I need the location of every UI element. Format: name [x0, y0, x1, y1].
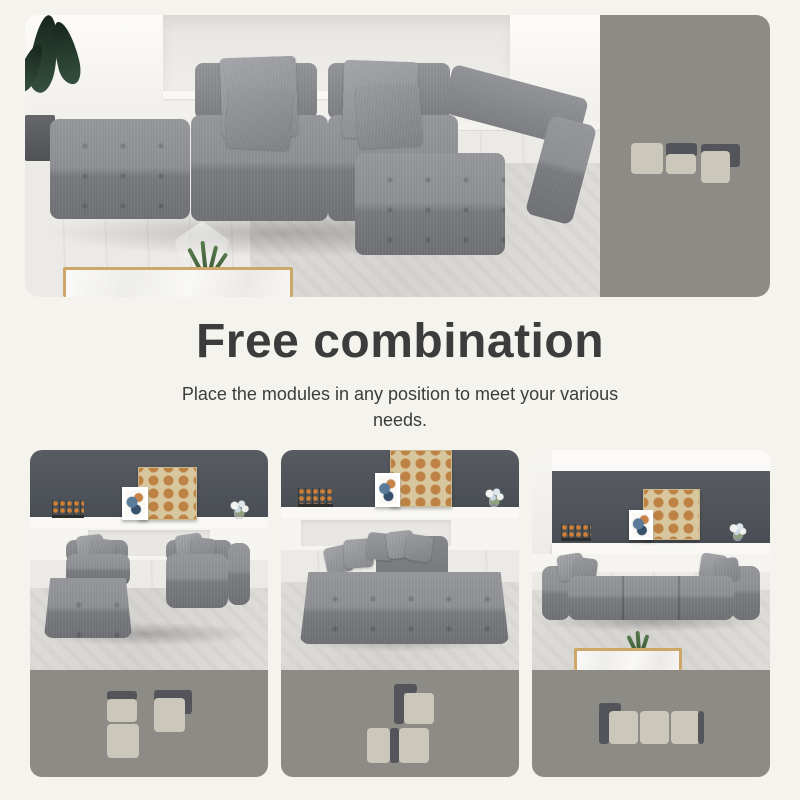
module-backrest-block — [390, 728, 399, 763]
framed-art — [122, 487, 148, 520]
pillow — [404, 533, 434, 563]
module-backrest-block — [698, 711, 704, 744]
coffee-table — [63, 267, 293, 297]
chaise-module — [355, 153, 505, 255]
ottoman-module — [44, 578, 132, 638]
module-backrest-block — [394, 684, 404, 724]
variant-photo-chaise-and-corner — [30, 450, 268, 670]
variant-card-1 — [30, 450, 268, 777]
flower-bouquet — [228, 500, 250, 516]
module-seat-block — [631, 143, 663, 174]
module-seat-block — [367, 728, 390, 763]
headline-section: Free combination Place the modules in an… — [0, 297, 800, 450]
page-subtitle: Place the modules in any position to mee… — [160, 382, 640, 433]
module-seat-block — [640, 711, 669, 744]
variant-panel-2 — [281, 670, 519, 777]
pillow — [355, 83, 422, 148]
variant-panel-3 — [532, 670, 770, 777]
framed-art — [629, 510, 653, 540]
page-title: Free combination — [196, 314, 604, 369]
product-infographic: Free combination Place the modules in an… — [0, 0, 800, 800]
module-backrest-block — [599, 703, 609, 744]
wall-ledge — [552, 543, 770, 554]
flower-bouquet — [483, 488, 505, 504]
module-seat-block — [399, 728, 429, 763]
module-seat-block — [154, 698, 185, 732]
corner-plant — [25, 15, 95, 109]
candelabra — [561, 524, 591, 541]
ottoman-module — [50, 119, 190, 219]
seat-row-modules — [568, 576, 734, 620]
module-diagram-chaise-sectional — [631, 143, 740, 183]
hero-config-panel — [600, 15, 770, 297]
module-seat-block — [701, 151, 730, 183]
module-seat-block — [666, 154, 696, 174]
corner-seat-module — [166, 554, 228, 608]
variant-card-2 — [281, 450, 519, 777]
side-wall — [532, 450, 552, 570]
wall-ledge — [281, 507, 519, 518]
module-seat-block — [609, 711, 638, 744]
variant-card-3 — [532, 450, 770, 777]
module-seat-block — [107, 699, 137, 722]
hero-card — [25, 15, 770, 297]
variant-photo-daybed — [281, 450, 519, 670]
variant-photo-three-seater — [532, 450, 770, 670]
candelabra — [298, 488, 333, 507]
module-seat-block — [107, 724, 139, 758]
soffit — [532, 450, 770, 471]
candelabra — [52, 500, 84, 518]
module-seat-block — [671, 711, 700, 744]
variant-panel-1 — [30, 670, 268, 777]
flower-bouquet — [728, 523, 747, 538]
module-diagram-chaise-plus-corner — [107, 690, 192, 758]
pillow — [225, 87, 292, 150]
platform-modules — [300, 572, 509, 644]
framed-art — [375, 473, 400, 507]
module-diagram-three-seater — [599, 703, 704, 744]
layout-variants — [30, 450, 770, 777]
module-diagram-facing-cluster — [367, 684, 434, 763]
coffee-table — [574, 648, 682, 670]
hero-photo-living-room — [25, 15, 600, 297]
corner-arm — [228, 543, 250, 605]
module-seat-block — [404, 693, 434, 724]
